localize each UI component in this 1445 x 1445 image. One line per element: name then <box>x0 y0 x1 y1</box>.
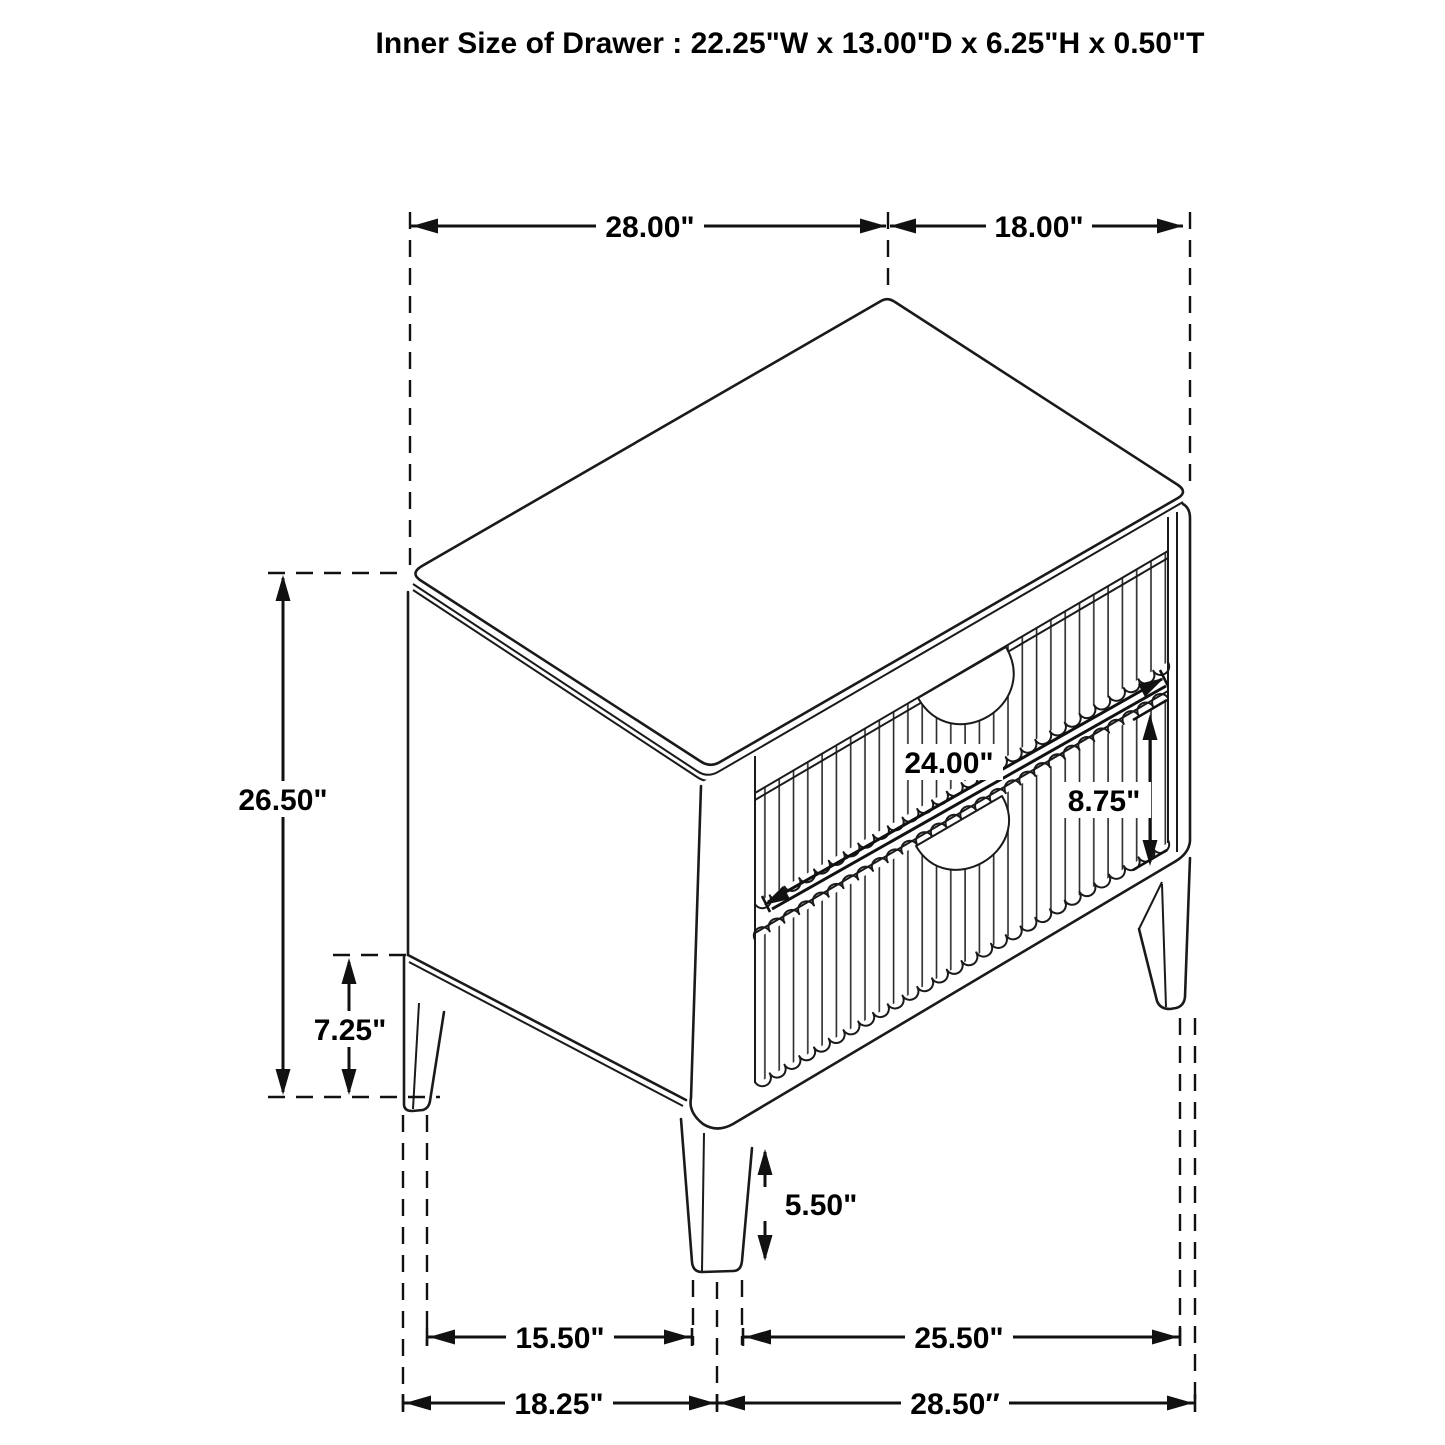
dim-label-base-depth: 28.50″ <box>910 1388 999 1421</box>
dim-label-front-leg-span: 15.50" <box>515 1322 604 1355</box>
top-dimensions: 28.00" 18.00" <box>410 208 1183 244</box>
dim-label-top-depth: 18.00" <box>994 211 1083 244</box>
nightstand-dimension-diagram: Inner Size of Drawer : 22.25"W x 13.00"D… <box>0 0 1445 1445</box>
dim-label-base-clearance: 7.25" <box>314 1014 387 1047</box>
dim-label-leg-height: 5.50" <box>785 1189 858 1222</box>
dim-label-drawer-front-height: 8.75" <box>1068 785 1141 818</box>
dimension-diagram-page: Inner Size of Drawer : 22.25"W x 13.00"D… <box>0 0 1445 1445</box>
dim-label-drawer-width: 24.00" <box>904 747 993 780</box>
left-dimensions: 26.50" 7.25" <box>230 575 395 1095</box>
dim-label-side-leg-span: 25.50" <box>914 1322 1003 1355</box>
bottom-dimensions-row1: 15.50" 25.50" <box>427 1319 1180 1355</box>
diagram-title: Inner Size of Drawer : 22.25"W x 13.00"D… <box>376 27 1205 60</box>
rear-left-leg <box>404 957 444 1111</box>
bottom-dimensions-row2: 18.25" 28.50″ <box>403 1385 1195 1421</box>
dim-label-base-width: 18.25" <box>514 1388 603 1421</box>
dim-label-overall-height: 26.50" <box>238 784 327 817</box>
leg-height-dimension: 5.50" <box>758 1149 868 1261</box>
dim-label-top-width: 28.00" <box>605 211 694 244</box>
